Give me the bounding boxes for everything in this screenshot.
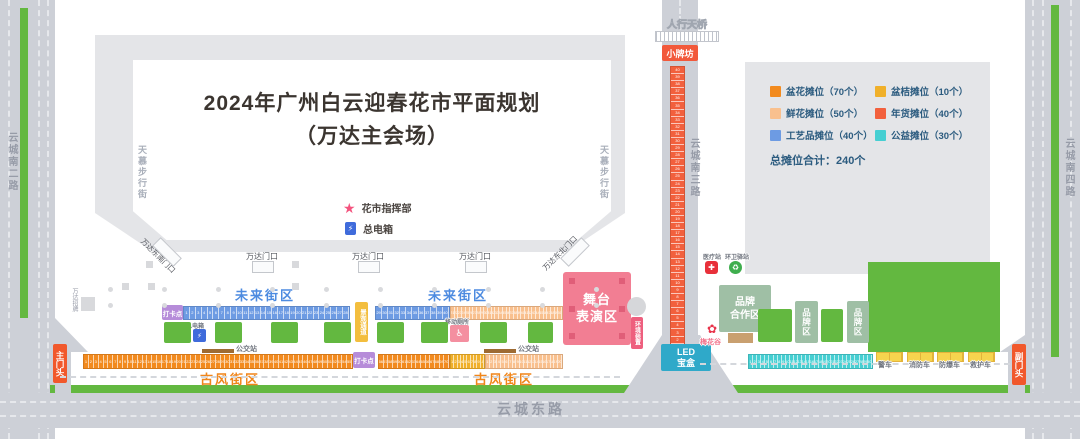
installation-circle	[627, 297, 646, 316]
legend-item: 盆桔摊位（10个）	[875, 80, 975, 102]
plaza-dot	[324, 287, 329, 292]
road-left-label: 云城南二路	[4, 132, 19, 192]
legend-swatch-icon	[875, 130, 886, 141]
vehicle-label: 消防车	[909, 360, 930, 370]
charity-stalls-strip: 1234567891011121314151617181920212223242…	[748, 354, 873, 369]
plaza-pillar	[148, 283, 155, 290]
installation-box: 环境装置	[631, 317, 643, 349]
title-line1: 2024年广州白云迎春花市平面规划	[133, 88, 611, 121]
plum-flower-icon: ✿	[707, 323, 717, 335]
plaza-pillar	[146, 261, 153, 268]
stall-cell: 35	[671, 102, 684, 109]
plaza-dot	[270, 303, 275, 308]
plaza-dot	[594, 303, 599, 308]
plaza-dot	[108, 303, 113, 308]
medical-icon: ✚	[705, 261, 718, 274]
stall-cell: 38	[671, 81, 684, 88]
vehicle-label: 警车	[878, 360, 892, 370]
planter	[164, 322, 191, 343]
stall-cell: 24	[671, 181, 684, 188]
legend-item: 盆花摊位（70个）	[770, 80, 875, 102]
led-label-line2: 宝盒	[677, 358, 695, 369]
stall-cell: 20	[558, 355, 562, 368]
brand-zone-2: 品牌区	[847, 301, 869, 343]
medical-label: 医疗站	[703, 252, 721, 261]
stage-area: 舞台 表演区	[563, 272, 631, 345]
brand-zone-2-label: 品牌区	[852, 308, 864, 337]
stall-cell: 20	[671, 209, 684, 216]
planter-right-2	[821, 309, 843, 342]
main-front-gate-label: 主门头	[54, 351, 66, 377]
plaza-dot	[270, 287, 275, 292]
stall-cell: 28	[671, 152, 684, 159]
canopy-street-right-label: 天慕步行街	[598, 145, 611, 200]
checkin-label-1: 打卡点	[163, 308, 183, 318]
planter	[215, 322, 242, 343]
stall-cell: 23	[671, 188, 684, 195]
stall-cell: 6	[671, 308, 684, 315]
plaza-pillar	[122, 283, 129, 290]
landscape-passage-box: 景观通道	[355, 302, 368, 342]
stall-cell: 15	[671, 244, 684, 251]
stall-cell: 70	[444, 355, 449, 368]
plaza-dot	[108, 287, 113, 292]
bus-stop-bar-1	[202, 349, 234, 353]
stall-cell: 33	[671, 117, 684, 124]
fresh-stalls-strip-bottom: 1234567891011121314151617181920	[485, 354, 563, 369]
brand-coop-line2: 合作区	[730, 309, 760, 322]
legend-label: 盆花摊位（70个）	[786, 84, 863, 98]
planter	[324, 322, 351, 343]
plaza-dot	[216, 287, 221, 292]
stall-cell: 12	[671, 266, 684, 273]
power-box-icon: ⚡	[345, 222, 356, 235]
plaza-dot	[486, 303, 491, 308]
command-post-row: ★ 花市指挥部	[343, 200, 412, 215]
stall-cell: 26	[671, 166, 684, 173]
road-right-median	[1051, 5, 1059, 357]
star-icon: ★	[343, 201, 356, 215]
craft-stalls-strip-b: 293031323334353637383940	[375, 306, 450, 320]
plum-label: 梅花谷	[700, 337, 721, 347]
led-label-line1: LED	[677, 347, 695, 358]
archway-label: 小牌坊	[666, 47, 693, 60]
stall-cell: 30	[671, 138, 684, 145]
led-box: LED 宝盒	[661, 344, 711, 371]
legend-item: 工艺品摊位（40个）	[770, 124, 875, 146]
vehicle-label: 救护车	[970, 360, 991, 370]
queue-line-right	[700, 363, 1010, 365]
stall-cell: 13	[671, 259, 684, 266]
main-power-label: 总电箱	[363, 221, 393, 236]
brand-coop-tan-box	[728, 333, 753, 343]
bus-stop-label-2: 公交站	[518, 344, 539, 354]
stall-cell: 2	[671, 337, 684, 344]
stall-cell: 14	[671, 251, 684, 258]
legend-swatch-icon	[770, 108, 781, 119]
title-line2: （万达主会场）	[133, 121, 611, 154]
plaza-dot	[486, 287, 491, 292]
stall-cell: 27	[671, 159, 684, 166]
queue-line-left	[60, 376, 620, 378]
plaza-dot	[378, 303, 383, 308]
stall-cell: 7	[671, 301, 684, 308]
newyear-goods-stalls-strip: 4039383736353433323130292827262524232221…	[670, 66, 685, 352]
legend-grid: 盆花摊位（70个）盆桔摊位（10个）鲜花摊位（50个）年货摊位（40个）工艺品摊…	[770, 80, 975, 146]
road-right-label: 云城南四路	[1061, 138, 1076, 198]
stall-cell: 55	[347, 355, 352, 368]
legend-total: 总摊位合计：240个	[770, 152, 975, 168]
stall-cell: 3	[671, 329, 684, 336]
potted-stalls-strip-a: 1234567891011121314151617181920212223242…	[83, 354, 353, 369]
gate-main-1-box	[252, 261, 274, 273]
ancient-zone-label-2: 古风街区	[474, 369, 534, 388]
plaza-dot	[162, 287, 167, 292]
brand-zone-1-label: 品牌区	[801, 308, 813, 337]
stall-cell: 29	[671, 145, 684, 152]
road-bottom-label: 云城东路	[497, 399, 565, 419]
planter	[377, 322, 404, 343]
future-zone-label-1: 未来街区	[235, 285, 295, 304]
stall-cell: 37	[671, 88, 684, 95]
big-green-area	[868, 262, 1000, 352]
roadside-green-strip	[50, 385, 1030, 393]
stall-cell: 34	[671, 110, 684, 117]
stall-cell: 28	[343, 307, 349, 319]
plaza-dot	[216, 303, 221, 308]
plaza-dot	[378, 287, 383, 292]
canopy-street-left-label: 天慕步行街	[136, 145, 149, 200]
planter-right-1	[758, 309, 792, 342]
plaza-dot	[594, 287, 599, 292]
wanda-sign-label: 万达招牌	[70, 288, 79, 312]
command-post-label: 花市指挥部	[362, 200, 412, 215]
legend-label: 工艺品摊位（40个）	[786, 128, 873, 142]
gate-main-3-box	[465, 261, 487, 273]
stall-cell: 40	[671, 67, 684, 74]
stall-cell: 10	[671, 280, 684, 287]
brand-zone-1: 品牌区	[795, 301, 818, 343]
stall-cell: 32	[671, 124, 684, 131]
main-power-row: ⚡ 总电箱	[345, 221, 393, 236]
stall-cell: 25	[671, 173, 684, 180]
legend-item: 鲜花摊位（50个）	[770, 102, 875, 124]
vehicle-label: 防爆车	[939, 360, 960, 370]
legend-label: 公益摊位（30个）	[891, 128, 968, 142]
stall-cell: 50	[558, 307, 562, 319]
planter	[528, 322, 553, 343]
sanitation-label: 环卫驿站	[725, 252, 749, 261]
stall-cell: 11	[671, 273, 684, 280]
stall-cell: 19	[671, 216, 684, 223]
legend-item: 公益摊位（30个）	[875, 124, 975, 146]
planter	[480, 322, 507, 343]
wanda-sign-box	[81, 297, 95, 311]
installation-label: 环境装置	[633, 321, 642, 345]
street-power-box-icon: ⚡	[193, 329, 206, 342]
gate-main-2-box	[358, 261, 380, 273]
sub-front-gate-label: 副门头	[1013, 352, 1025, 378]
stall-cell: 21	[671, 202, 684, 209]
stall-cell: 17	[671, 230, 684, 237]
stall-cell: 18	[671, 223, 684, 230]
legend: 盆花摊位（70个）盆桔摊位（10个）鲜花摊位（50个）年货摊位（40个）工艺品摊…	[770, 80, 975, 168]
plaza-dot	[540, 303, 545, 308]
brand-coop-line1: 品牌	[735, 296, 755, 309]
archway-box: 小牌坊	[662, 45, 698, 61]
legend-label: 年货摊位（40个）	[891, 106, 968, 120]
pedestrian-bridge-label: 人行天桥	[655, 16, 719, 31]
plaza-dot	[540, 287, 545, 292]
stall-cell: 22	[671, 195, 684, 202]
stall-cell: 9	[671, 287, 684, 294]
stall-cell: 39	[671, 74, 684, 81]
road-middle-label: 云城南三路	[686, 138, 701, 198]
sanitation-icon: ♻	[729, 261, 742, 274]
legend-swatch-icon	[875, 86, 886, 97]
kumquat-stalls-strip: 12345678910	[450, 354, 485, 369]
stall-cell: 4	[671, 322, 684, 329]
stall-cell: 16	[671, 237, 684, 244]
stall-cell: 36	[671, 95, 684, 102]
craft-stalls-strip-a: 1234567891011121314151617181920212223242…	[183, 306, 350, 320]
checkin-label-2: 打卡点	[354, 355, 374, 365]
page-title: 2024年广州白云迎春花市平面规划 （万达主会场）	[133, 88, 611, 153]
bus-stop-bar-2	[484, 349, 516, 353]
legend-label: 盆桔摊位（10个）	[891, 84, 968, 98]
pedestrian-bridge	[655, 31, 719, 42]
legend-swatch-icon	[770, 86, 781, 97]
stall-cell: 31	[671, 131, 684, 138]
stage-label-line2: 表演区	[576, 309, 618, 326]
sub-front-gate: 副门头	[1012, 344, 1026, 385]
flower-market-plan-map: 云城南二路 云城南四路 云城东路 云城南三路 人行天桥 2024年广州白云迎春花…	[0, 0, 1080, 439]
legend-label: 鲜花摊位（50个）	[786, 106, 863, 120]
road-left-median	[20, 8, 28, 318]
toilet-icon: ♿	[450, 325, 469, 342]
checkin-point-2: 打卡点	[353, 352, 375, 368]
stall-cell: 30	[868, 355, 872, 368]
stall-cell: 10	[481, 355, 484, 368]
legend-swatch-icon	[770, 130, 781, 141]
plaza-pillar	[292, 283, 299, 290]
ancient-zone-label-1: 古风街区	[200, 369, 260, 388]
plaza-dot	[432, 303, 437, 308]
plaza-dot	[432, 287, 437, 292]
stall-cell: 5	[671, 315, 684, 322]
landscape-passage-label: 景观通道	[357, 309, 367, 335]
plaza-dot	[162, 303, 167, 308]
planter	[271, 322, 298, 343]
potted-stalls-strip-b: 565758596061626364656667686970	[378, 354, 450, 369]
stall-cell: 8	[671, 294, 684, 301]
plaza-pillar	[292, 261, 299, 268]
legend-swatch-icon	[875, 108, 886, 119]
bus-stop-label-1: 公交站	[236, 344, 257, 354]
plaza-dot	[324, 303, 329, 308]
planter	[421, 322, 448, 343]
legend-item: 年货摊位（40个）	[875, 102, 975, 124]
future-zone-label-2: 未来街区	[428, 285, 488, 304]
